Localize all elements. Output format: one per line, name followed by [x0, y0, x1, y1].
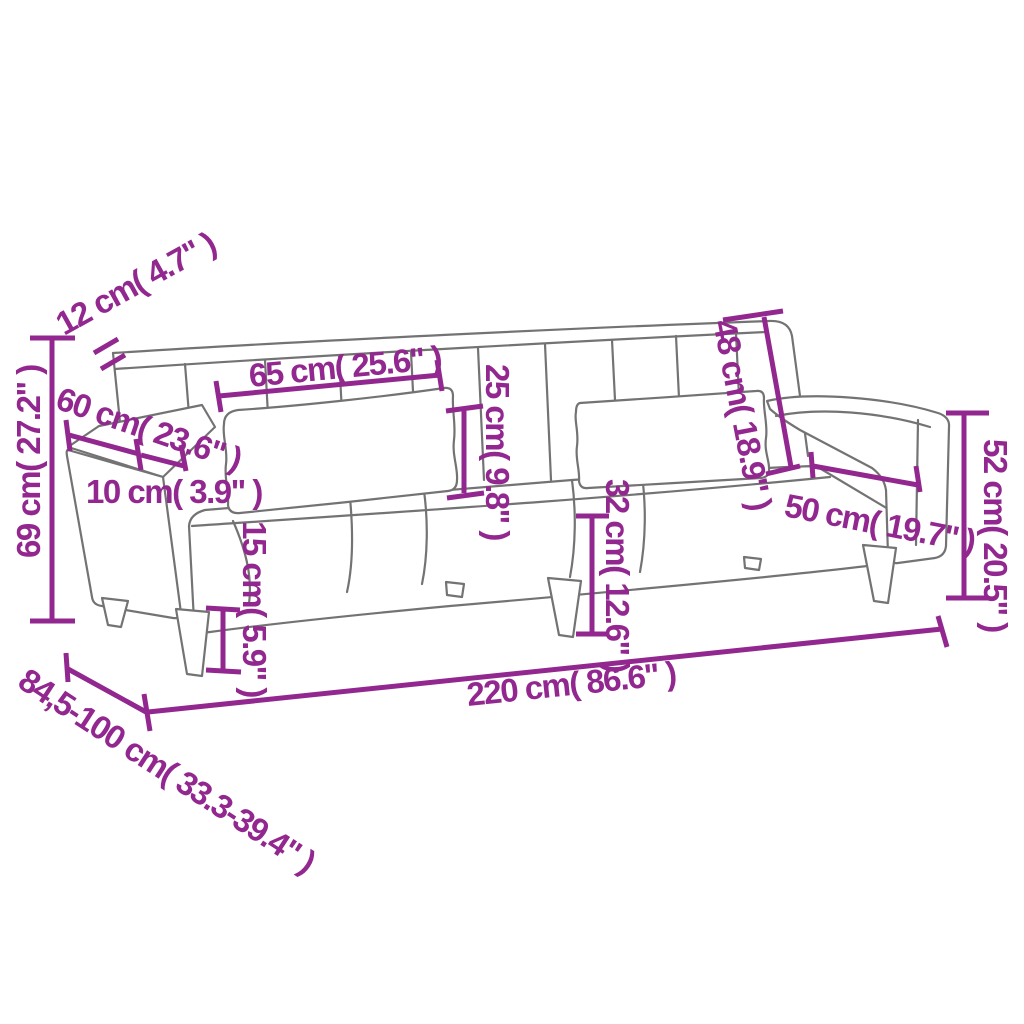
dimension-armrest-width-label: 10 cm( 3.9" ) [86, 473, 262, 510]
dimension-total-depth: 84,5-100 cm( 33.3-39.4" ) [12, 653, 322, 880]
leg-front-middle [548, 578, 581, 637]
dimension-seat-height-label: 32 cm( 12.6" ) [599, 479, 636, 672]
foot-rear-center-right [744, 557, 761, 570]
dimension-pillow-height-label: 25 cm( 9.8" ) [479, 364, 516, 540]
dimension-side-height-label: 52 cm( 20.5" ) [977, 439, 1014, 632]
leg-front-left [176, 609, 209, 676]
dimension-total-height-label: 69 cm( 27.2" ) [10, 365, 47, 558]
dimension-backrest-thickness-ticks [94, 339, 125, 369]
dimension-leg-height-label: 15 cm( 5.9" ) [236, 521, 273, 697]
leg-rear-left [102, 598, 128, 627]
dimension-total-width-label: 220 cm( 86.6" ) [465, 654, 678, 713]
dimension-diagram: 69 cm( 27.2" ) 12 cm( 4.7" ) 60 cm( 23.6… [0, 0, 1024, 1024]
dimension-total-depth-label: 84,5-100 cm( 33.3-39.4" ) [12, 661, 322, 880]
dimension-backrest-thickness-label: 12 cm( 4.7" ) [49, 224, 221, 342]
foot-rear-center-left [446, 582, 464, 597]
sofa-dimension-drawing: 69 cm( 27.2" ) 12 cm( 4.7" ) 60 cm( 23.6… [0, 0, 1024, 1024]
leg-front-right [863, 545, 896, 603]
